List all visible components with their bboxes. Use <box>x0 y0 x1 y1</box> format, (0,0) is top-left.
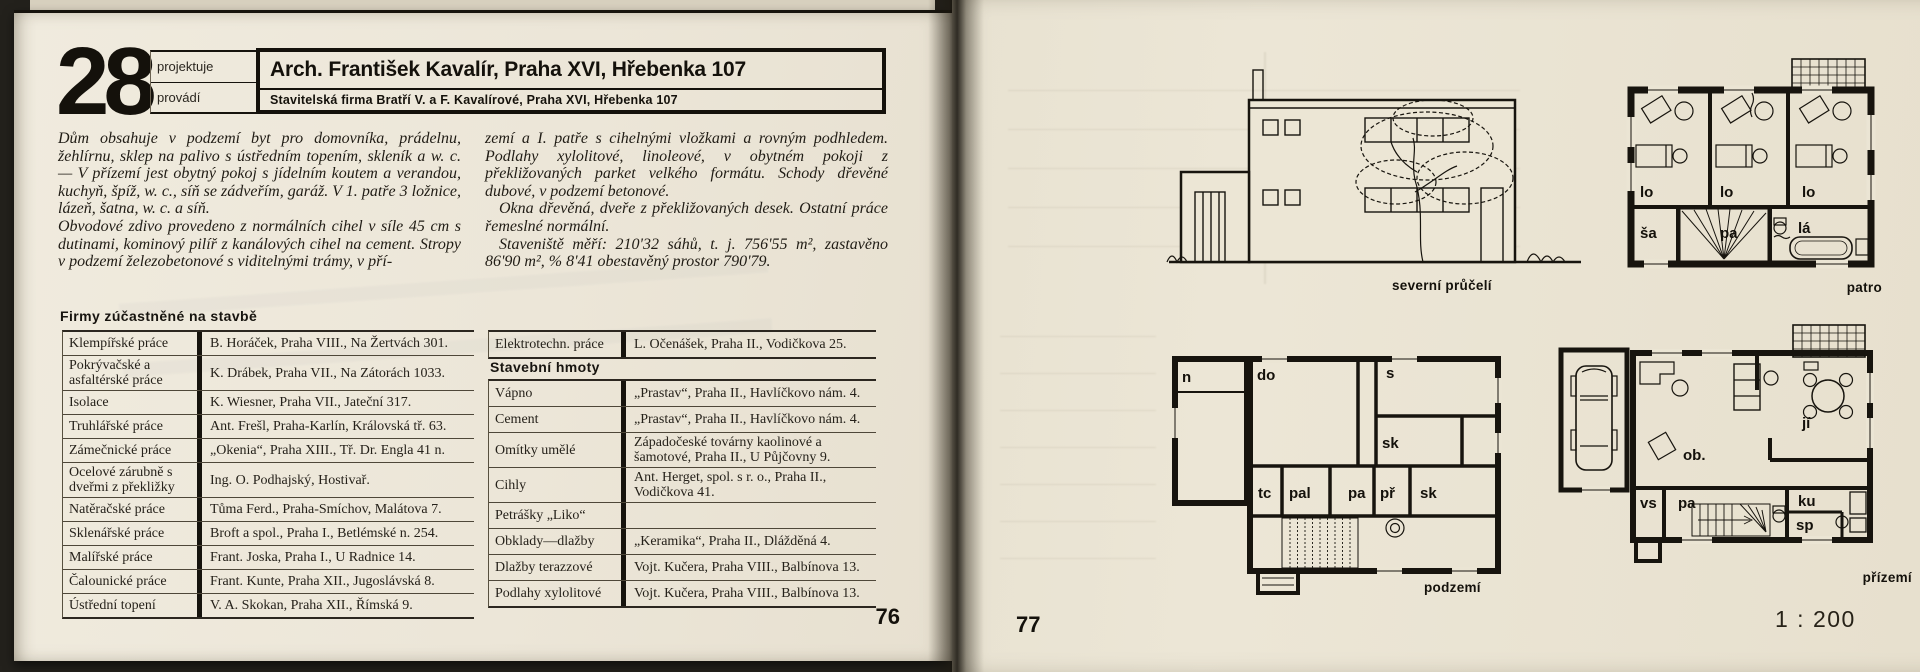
room-label: n <box>1182 369 1191 386</box>
stairs <box>1692 504 1770 536</box>
row-label: Sklenářské práce <box>63 524 197 543</box>
room-label: pa <box>1720 225 1738 242</box>
row-label: Truhlářské práce <box>63 417 197 436</box>
boiler <box>1262 519 1404 585</box>
table-row: Vápno„Prastav“, Praha II., Havlíčkovo ná… <box>489 381 876 407</box>
basement-floor-plan: n do s sk tc pal pa př sk <box>1162 348 1507 600</box>
row-value: Ant. Frešl, Praha-Karlín, Královská tř. … <box>202 417 474 436</box>
basement-caption: podzemí <box>1424 580 1481 595</box>
room-label: lo <box>1720 184 1733 201</box>
room-label: sp <box>1796 517 1814 534</box>
row-label: Dlažby terazzové <box>489 558 621 577</box>
paragraph: zemí a I. patře s cihelnými vložkami a r… <box>485 130 888 200</box>
row-label: Obklady—dlažby <box>489 532 621 551</box>
row-value: Frant. Joska, Praha I., U Radnice 14. <box>202 548 474 567</box>
project-number: 28 <box>56 34 151 130</box>
row-value <box>626 514 876 518</box>
role-design-label: projektuje <box>151 52 256 83</box>
electro-table: Elektrotechn. práceL. Očenášek, Praha II… <box>488 330 876 359</box>
description-column-1: Dům obsahuje v podzemí byt pro domovníka… <box>58 130 461 271</box>
bleed-through-ghost <box>1000 300 1156 568</box>
role-build-label: provádí <box>151 83 256 113</box>
row-value: „Prastav“, Praha II., Havlíčkovo nám. 4. <box>626 410 876 429</box>
row-value: V. A. Skokan, Praha XII., Římská 9. <box>202 596 474 615</box>
car <box>1571 366 1617 470</box>
room-label: lá <box>1798 220 1811 237</box>
table-row: Truhlářské práceAnt. Frešl, Praha-Karlín… <box>63 415 474 439</box>
row-value: Tůma Ferd., Praha-Smíchov, Malátova 7. <box>202 500 474 519</box>
upper-floor-caption: patro <box>1800 280 1882 295</box>
page-number-left: 76 <box>840 604 900 630</box>
row-value: „Keramika“, Praha II., Dlážděná 4. <box>626 532 876 551</box>
table-row: Natěračské práceTůma Ferd., Praha-Smícho… <box>63 498 474 522</box>
row-value: L. Očenášek, Praha II., Vodičkova 25. <box>626 335 876 354</box>
row-value: Vojt. Kučera, Praha VIII., Balbínova 13. <box>626 584 876 603</box>
table-row: Cement„Prastav“, Praha II., Havlíčkovo n… <box>489 407 876 433</box>
book-gutter-shadow <box>928 0 984 672</box>
builder-subtitle: Stavitelská firma Bratří V. a F. Kavalír… <box>260 90 882 110</box>
room-label: pal <box>1289 485 1311 502</box>
book-spread: 28 projektuje provádí Arch. František Ka… <box>0 0 1920 672</box>
room-label: ku <box>1798 493 1816 510</box>
drawing-scale: 1 : 200 <box>1775 606 1856 633</box>
firms-table: Klempířské práceB. Horáček, Praha VIII.,… <box>62 330 474 619</box>
row-value: „Okenia“, Praha XIII., Tř. Dr. Engla 41 … <box>202 441 474 460</box>
room-label: pa <box>1678 495 1696 512</box>
table-row: Klempířské práceB. Horáček, Praha VIII.,… <box>63 332 474 356</box>
row-label: Petrášky „Liko“ <box>489 506 621 525</box>
row-value: K. Wiesner, Praha VII., Jateční 317. <box>202 393 474 412</box>
elevation-caption: severní průčelí <box>1392 278 1492 293</box>
row-label: Vápno <box>489 384 621 403</box>
table-row: Zámečnické práce„Okenia“, Praha XIII., T… <box>63 439 474 463</box>
room-label: vs <box>1640 495 1657 512</box>
table-row: Sklenářské práceBroft a spol., Praha I.,… <box>63 522 474 546</box>
role-box: projektuje provádí <box>150 50 256 114</box>
description-column-2: zemí a I. patře s cihelnými vložkami a r… <box>485 130 888 271</box>
table-row: Elektrotechn. práceL. Očenášek, Praha II… <box>489 332 876 357</box>
room-label: tc <box>1258 485 1271 502</box>
row-value: K. Drábek, Praha VII., Na Zátorách 1033. <box>202 364 474 383</box>
row-label: Natěračské práce <box>63 500 197 519</box>
row-label: Cement <box>489 410 621 429</box>
table-row: Ústřední topeníV. A. Skokan, Praha XII.,… <box>63 594 474 617</box>
table-row: IsolaceK. Wiesner, Praha VII., Jateční 3… <box>63 391 474 415</box>
paragraph: Staveniště měří: 210'32 sáhů, t. j. 756'… <box>485 236 888 271</box>
table-row: Podlahy xylolitovéVojt. Kučera, Praha VI… <box>489 581 876 606</box>
furniture <box>1636 93 1851 167</box>
row-value: Západočeské továrny kaolinové a šamotové… <box>626 433 876 467</box>
room-label: jí <box>1801 415 1811 432</box>
room-label: lo <box>1640 184 1653 201</box>
row-label: Ústřední topení <box>63 596 197 615</box>
row-label: Elektrotechn. práce <box>489 335 621 354</box>
row-label: Podlahy xylolitové <box>489 584 621 603</box>
furniture <box>1640 362 1853 460</box>
table-row: CihlyAnt. Herget, spol. s r. o., Praha I… <box>489 468 876 503</box>
row-value: Frant. Kunte, Praha XII., Jugoslávská 8. <box>202 572 474 591</box>
row-label: Omítky umělé <box>489 441 621 460</box>
materials-table: Vápno„Prastav“, Praha II., Havlíčkovo ná… <box>488 379 876 608</box>
room-label: sk <box>1382 435 1399 452</box>
bathroom-fixtures <box>1774 218 1868 259</box>
paragraph: Dům obsahuje v podzemí byt pro domovníka… <box>58 130 461 218</box>
title-box: Arch. František Kavalír, Praha XVI, Hřeb… <box>256 48 886 114</box>
stairs <box>1282 518 1358 568</box>
room-label: pa <box>1348 485 1366 502</box>
page-number-right: 77 <box>1016 612 1040 638</box>
row-label: Isolace <box>63 393 197 412</box>
paragraph: Obvodové zdivo provedeno z normálních ci… <box>58 218 461 271</box>
room-label: ša <box>1640 225 1657 242</box>
table-row: Petrášky „Liko“ <box>489 503 876 529</box>
row-label: Čalounické práce <box>63 572 197 591</box>
row-label: Klempířské práce <box>63 334 197 353</box>
firms-heading: Firmy zúčastněné na stavbě <box>60 308 257 324</box>
row-value: Broft a spol., Praha I., Betlémské n. 25… <box>202 524 474 543</box>
row-label: Pokrývačské a asfaltérské práce <box>63 356 197 390</box>
row-label: Cihly <box>489 476 621 495</box>
row-label: Zámečnické práce <box>63 441 197 460</box>
table-row: Omítky uměléZápadočeské továrny kaolinov… <box>489 433 876 468</box>
room-label: ob. <box>1683 447 1706 464</box>
room-label: sk <box>1420 485 1437 502</box>
row-value: Ant. Herget, spol. s r. o., Praha II., V… <box>626 468 876 502</box>
table-row: Obklady—dlažby„Keramika“, Praha II., Dlá… <box>489 529 876 555</box>
row-value: B. Horáček, Praha VIII., Na Žertvách 301… <box>202 334 474 353</box>
architect-title: Arch. František Kavalír, Praha XVI, Hřeb… <box>260 52 882 90</box>
table-row: Pokrývačské a asfaltérské práceK. Drábek… <box>63 356 474 391</box>
row-label: Ocelové zárubně s dveřmi z překližky <box>63 463 197 497</box>
room-label: do <box>1257 367 1275 384</box>
ground-floor-caption: přízemí <box>1830 570 1912 585</box>
room-label: lo <box>1802 184 1815 201</box>
paragraph: Okna dřevěná, dveře z překližovaných des… <box>485 200 888 235</box>
materials-heading: Stavební hmoty <box>490 359 600 375</box>
row-value: Vojt. Kučera, Praha VIII., Balbínova 13. <box>626 558 876 577</box>
table-row: Čalounické práceFrant. Kunte, Praha XII.… <box>63 570 474 594</box>
room-label: s <box>1386 365 1394 382</box>
north-facade-elevation <box>1165 42 1585 270</box>
table-row: Dlažby terazzovéVojt. Kučera, Praha VIII… <box>489 555 876 581</box>
upper-floor-plan: lo lo lo ša pa lá <box>1620 55 1882 273</box>
row-value: Ing. O. Podhajský, Hostivař. <box>202 471 474 490</box>
ground-floor-plan: ob. jí vs pa ku sp <box>1552 318 1882 566</box>
table-row: Ocelové zárubně s dveřmi z překližkyIng.… <box>63 463 474 498</box>
row-value: „Prastav“, Praha II., Havlíčkovo nám. 4. <box>626 384 876 403</box>
table-row: Malířské práceFrant. Joska, Praha I., U … <box>63 546 474 570</box>
description-columns: Dům obsahuje v podzemí byt pro domovníka… <box>58 130 888 271</box>
room-label: př <box>1380 485 1395 502</box>
row-label: Malířské práce <box>63 548 197 567</box>
